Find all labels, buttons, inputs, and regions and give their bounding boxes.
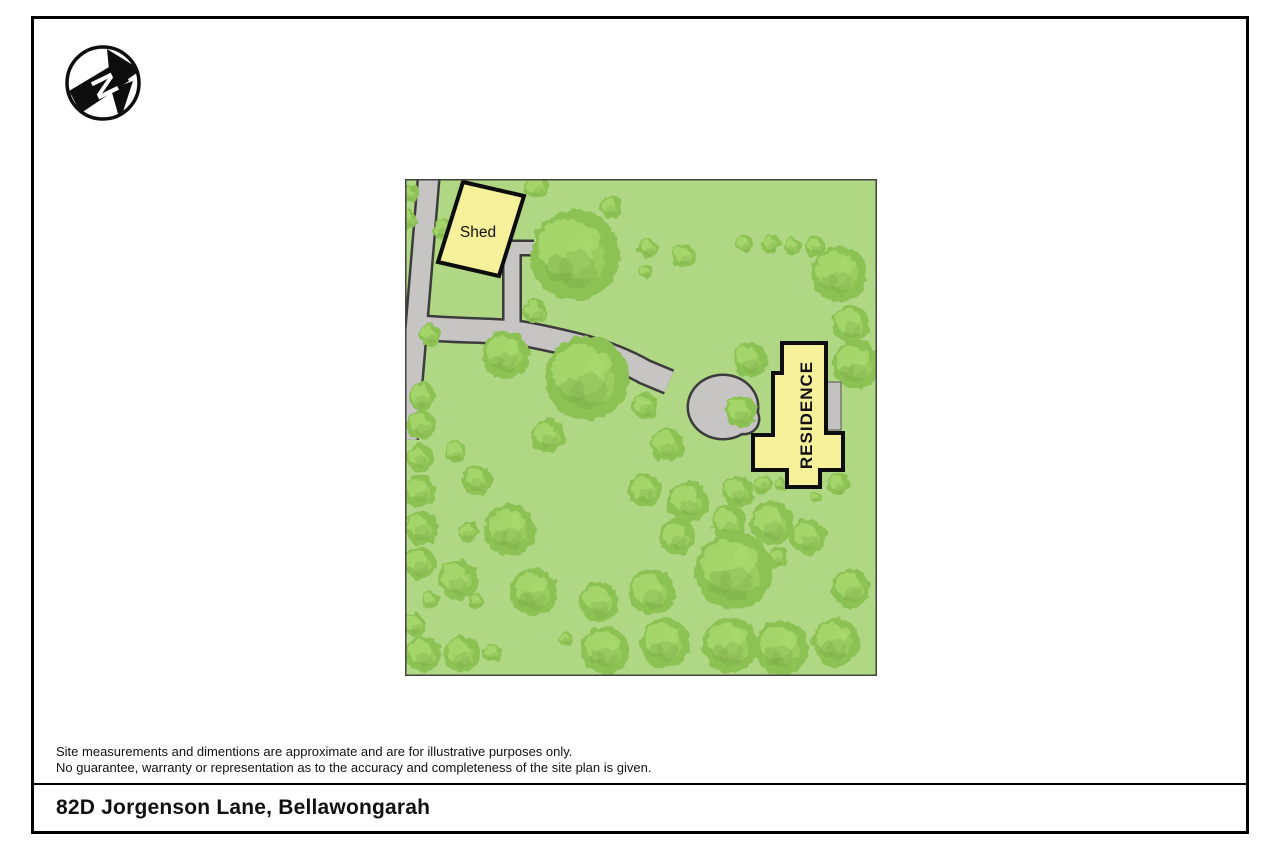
tree — [640, 618, 690, 668]
tree — [423, 592, 439, 608]
tree — [722, 476, 754, 508]
tree — [510, 568, 558, 616]
tree — [832, 569, 870, 607]
tree — [531, 419, 565, 453]
property-address: 82D Jorgenson Lane, Bellawongarah — [34, 796, 430, 820]
tree — [812, 618, 860, 666]
tree — [405, 636, 441, 672]
tree — [581, 626, 629, 674]
tree — [695, 532, 773, 610]
tree — [755, 621, 809, 675]
disclaimer-line-2: No guarantee, warranty or representation… — [56, 760, 651, 776]
page-frame: N Shed RESIDENCE Site measurements and d… — [31, 16, 1249, 834]
tree — [733, 343, 767, 377]
tree — [659, 519, 695, 555]
tree — [810, 492, 822, 504]
tree — [530, 210, 620, 300]
tree — [725, 396, 757, 428]
tree — [629, 569, 675, 615]
residence-label: RESIDENCE — [797, 361, 816, 469]
tree — [438, 560, 478, 600]
tree — [419, 324, 441, 346]
tree — [638, 238, 658, 258]
tree — [579, 582, 619, 622]
tree — [444, 636, 480, 672]
tree — [483, 644, 501, 662]
site-plan: Shed RESIDENCE — [405, 179, 877, 676]
tree — [650, 428, 684, 462]
tree — [484, 504, 536, 556]
tree — [405, 547, 436, 579]
tree — [545, 336, 629, 420]
tree — [667, 481, 709, 523]
tree — [638, 265, 652, 279]
tree — [762, 235, 780, 253]
tree — [482, 331, 530, 379]
tree — [405, 511, 438, 545]
disclaimer-text: Site measurements and dimentions are app… — [56, 744, 651, 776]
tree — [632, 393, 658, 419]
north-compass-icon: N — [63, 43, 143, 123]
tree — [832, 305, 870, 343]
tree — [445, 441, 467, 463]
disclaimer-line-1: Site measurements and dimentions are app… — [56, 744, 651, 760]
tree — [628, 473, 662, 507]
shed-label: Shed — [460, 224, 496, 241]
tree — [735, 235, 753, 253]
deck — [826, 382, 841, 430]
tree — [754, 476, 772, 494]
tree — [458, 522, 478, 542]
tree — [523, 300, 547, 324]
tree — [405, 475, 436, 507]
tree — [406, 444, 434, 472]
tree — [827, 473, 849, 495]
tree — [408, 383, 436, 411]
tree — [811, 246, 867, 302]
tree — [750, 501, 794, 545]
document-canvas: N Shed RESIDENCE Site measurements and d… — [0, 0, 1280, 854]
tree — [462, 465, 492, 495]
tree — [672, 244, 696, 268]
address-bar: 82D Jorgenson Lane, Bellawongarah — [34, 783, 1246, 831]
tree — [600, 196, 622, 218]
tree — [783, 237, 801, 255]
tree — [406, 410, 436, 440]
tree — [774, 478, 786, 490]
tree — [702, 617, 758, 673]
tree — [559, 632, 573, 646]
tree — [790, 519, 826, 555]
